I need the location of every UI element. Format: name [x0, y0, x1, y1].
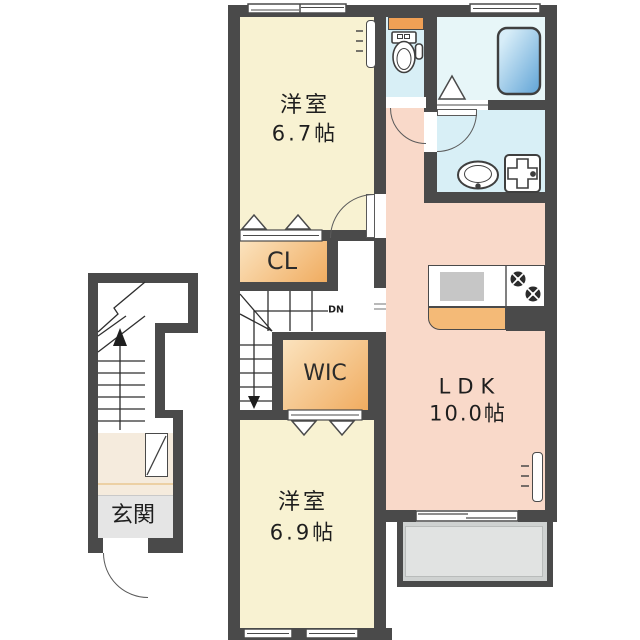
- entrance-step-line: [98, 483, 173, 485]
- wall-segment: [362, 410, 374, 420]
- wall-segment: [374, 238, 386, 288]
- kitchen-sink: [440, 272, 484, 301]
- wall-segment: [228, 5, 240, 640]
- front-door-arc: [103, 553, 148, 598]
- hall-floor: [386, 108, 424, 203]
- wall-segment: [374, 510, 416, 522]
- toilet-shelf: [388, 17, 424, 30]
- wall-segment: [518, 510, 557, 522]
- shoe-cabinet-icon: [145, 433, 168, 477]
- wall-segment: [272, 332, 283, 420]
- stair-arrow-head-down: [248, 396, 260, 409]
- balcony-rim: [547, 522, 553, 587]
- balcony-inner-panel: [405, 526, 543, 577]
- doorway-gap: [386, 97, 426, 108]
- wall-segment: [240, 410, 288, 420]
- wic-label: WIC: [303, 363, 347, 385]
- staircase-up: [98, 282, 145, 430]
- doorway-gap: [374, 194, 386, 238]
- closet-label: CL: [267, 249, 297, 273]
- wall-segment: [545, 5, 557, 522]
- wall-segment: [368, 332, 374, 420]
- ac-unit-icon: [532, 452, 543, 502]
- wall-segment: [488, 100, 545, 110]
- bedroom-bottom-label: 洋室: [278, 492, 328, 514]
- wall-segment: [88, 273, 198, 283]
- doorway-gap: [374, 288, 386, 332]
- ldk-floor: [386, 203, 545, 510]
- ldk-label: LDK: [439, 377, 502, 398]
- wic-track: [288, 410, 362, 420]
- washroom-floor: [437, 110, 545, 192]
- door-arc-curve: [103, 553, 148, 598]
- wall-segment: [374, 332, 386, 628]
- floor-plan: 洋室 6.7帖 CL DN WIC 洋室 6.9帖 LDK 10.0帖 玄関: [0, 0, 640, 640]
- sliding-door-icon: [416, 511, 518, 521]
- wall-segment: [228, 628, 392, 640]
- closet-track: [240, 230, 322, 241]
- wall-segment: [272, 332, 374, 340]
- wall-segment: [228, 5, 557, 17]
- wall-segment: [424, 192, 557, 203]
- door-leaf: [437, 109, 477, 116]
- wall-segment: [240, 282, 338, 291]
- wall-segment: [88, 273, 98, 553]
- wall-segment: [506, 307, 557, 331]
- stair-break-line: [98, 282, 145, 332]
- doorway-gap: [424, 112, 437, 152]
- wall-segment: [88, 538, 103, 553]
- doorway-gap: [103, 538, 148, 553]
- kitchen-lower-counter: [428, 307, 506, 330]
- bath-floor: [437, 17, 545, 100]
- entrance-label: 玄関: [111, 505, 155, 527]
- wall-segment: [148, 538, 183, 553]
- bedroom-bottom-size: 6.9帖: [270, 523, 336, 544]
- ldk-size: 10.0帖: [429, 404, 507, 425]
- ac-unit-icon: [366, 20, 376, 68]
- stairs-down-label: DN: [328, 305, 344, 315]
- balcony-rim: [397, 581, 553, 587]
- bedroom-top-label: 洋室: [280, 95, 330, 117]
- bedroom-top-size: 6.7帖: [272, 124, 338, 145]
- wall-segment: [173, 410, 183, 553]
- door-leaf: [366, 194, 375, 238]
- stair-arrow-head-up: [113, 328, 127, 346]
- wall-segment: [155, 323, 165, 418]
- balcony-rim: [397, 522, 403, 587]
